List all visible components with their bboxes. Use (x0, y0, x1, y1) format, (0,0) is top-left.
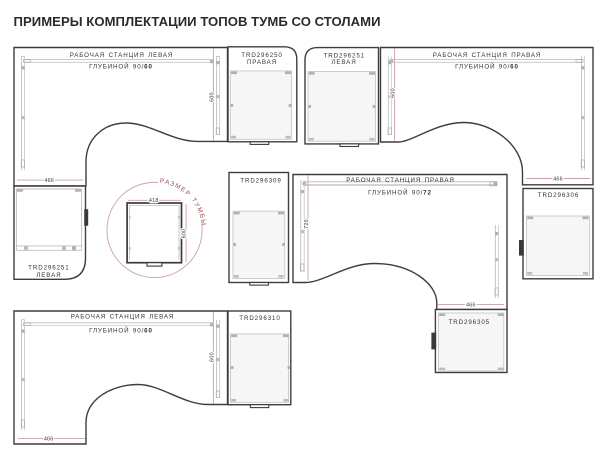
svg-text:ГЛУБИНОЙ 90/60: ГЛУБИНОЙ 90/60 (455, 63, 519, 71)
svg-text:466: 466 (44, 437, 54, 443)
svg-text:ЛЕВАЯ: ЛЕВАЯ (331, 59, 356, 66)
svg-text:ГЛУБИНОЙ 90/60: ГЛУБИНОЙ 90/60 (89, 63, 153, 71)
svg-text:РАБОЧАЯ СТАНЦИЯ ПРАВАЯ: РАБОЧАЯ СТАНЦИЯ ПРАВАЯ (346, 177, 455, 184)
svg-text:ЛЕВАЯ: ЛЕВАЯ (36, 272, 61, 279)
svg-text:418: 418 (149, 198, 159, 204)
svg-text:600: 600 (182, 229, 188, 239)
svg-text:TRD296305: TRD296305 (449, 319, 490, 326)
svg-text:ГЛУБИНОЙ 90/72: ГЛУБИНОЙ 90/72 (368, 189, 432, 197)
svg-text:ПРАВАЯ: ПРАВАЯ (247, 59, 277, 66)
svg-text:600: 600 (209, 352, 215, 362)
svg-text:466: 466 (44, 178, 54, 184)
svg-text:ПРИМЕРЫ КОМПЛЕКТАЦИИ ТОПОВ ТУМ: ПРИМЕРЫ КОМПЛЕКТАЦИИ ТОПОВ ТУМБ СО СТОЛА… (14, 14, 381, 29)
svg-text:720: 720 (304, 219, 310, 229)
svg-text:600: 600 (391, 88, 397, 98)
svg-text:РАБОЧАЯ СТАНЦИЯ ЛЕВАЯ: РАБОЧАЯ СТАНЦИЯ ЛЕВАЯ (71, 314, 175, 321)
svg-text:РАБОЧАЯ СТАНЦИЯ ПРАВАЯ: РАБОЧАЯ СТАНЦИЯ ПРАВАЯ (433, 52, 542, 59)
svg-text:РАБОЧАЯ СТАНЦИЯ ЛЕВАЯ: РАБОЧАЯ СТАНЦИЯ ЛЕВАЯ (70, 52, 174, 59)
svg-text:TRD296306: TRD296306 (538, 192, 579, 199)
svg-text:ГЛУБИНОЙ 90/60: ГЛУБИНОЙ 90/60 (89, 327, 153, 335)
svg-text:466: 466 (466, 303, 476, 309)
svg-text:466: 466 (553, 176, 563, 182)
svg-text:TRD296309: TRD296309 (240, 177, 281, 184)
svg-text:TRD296251: TRD296251 (28, 265, 69, 272)
svg-text:600: 600 (209, 92, 215, 102)
svg-text:TRD296310: TRD296310 (239, 315, 280, 322)
